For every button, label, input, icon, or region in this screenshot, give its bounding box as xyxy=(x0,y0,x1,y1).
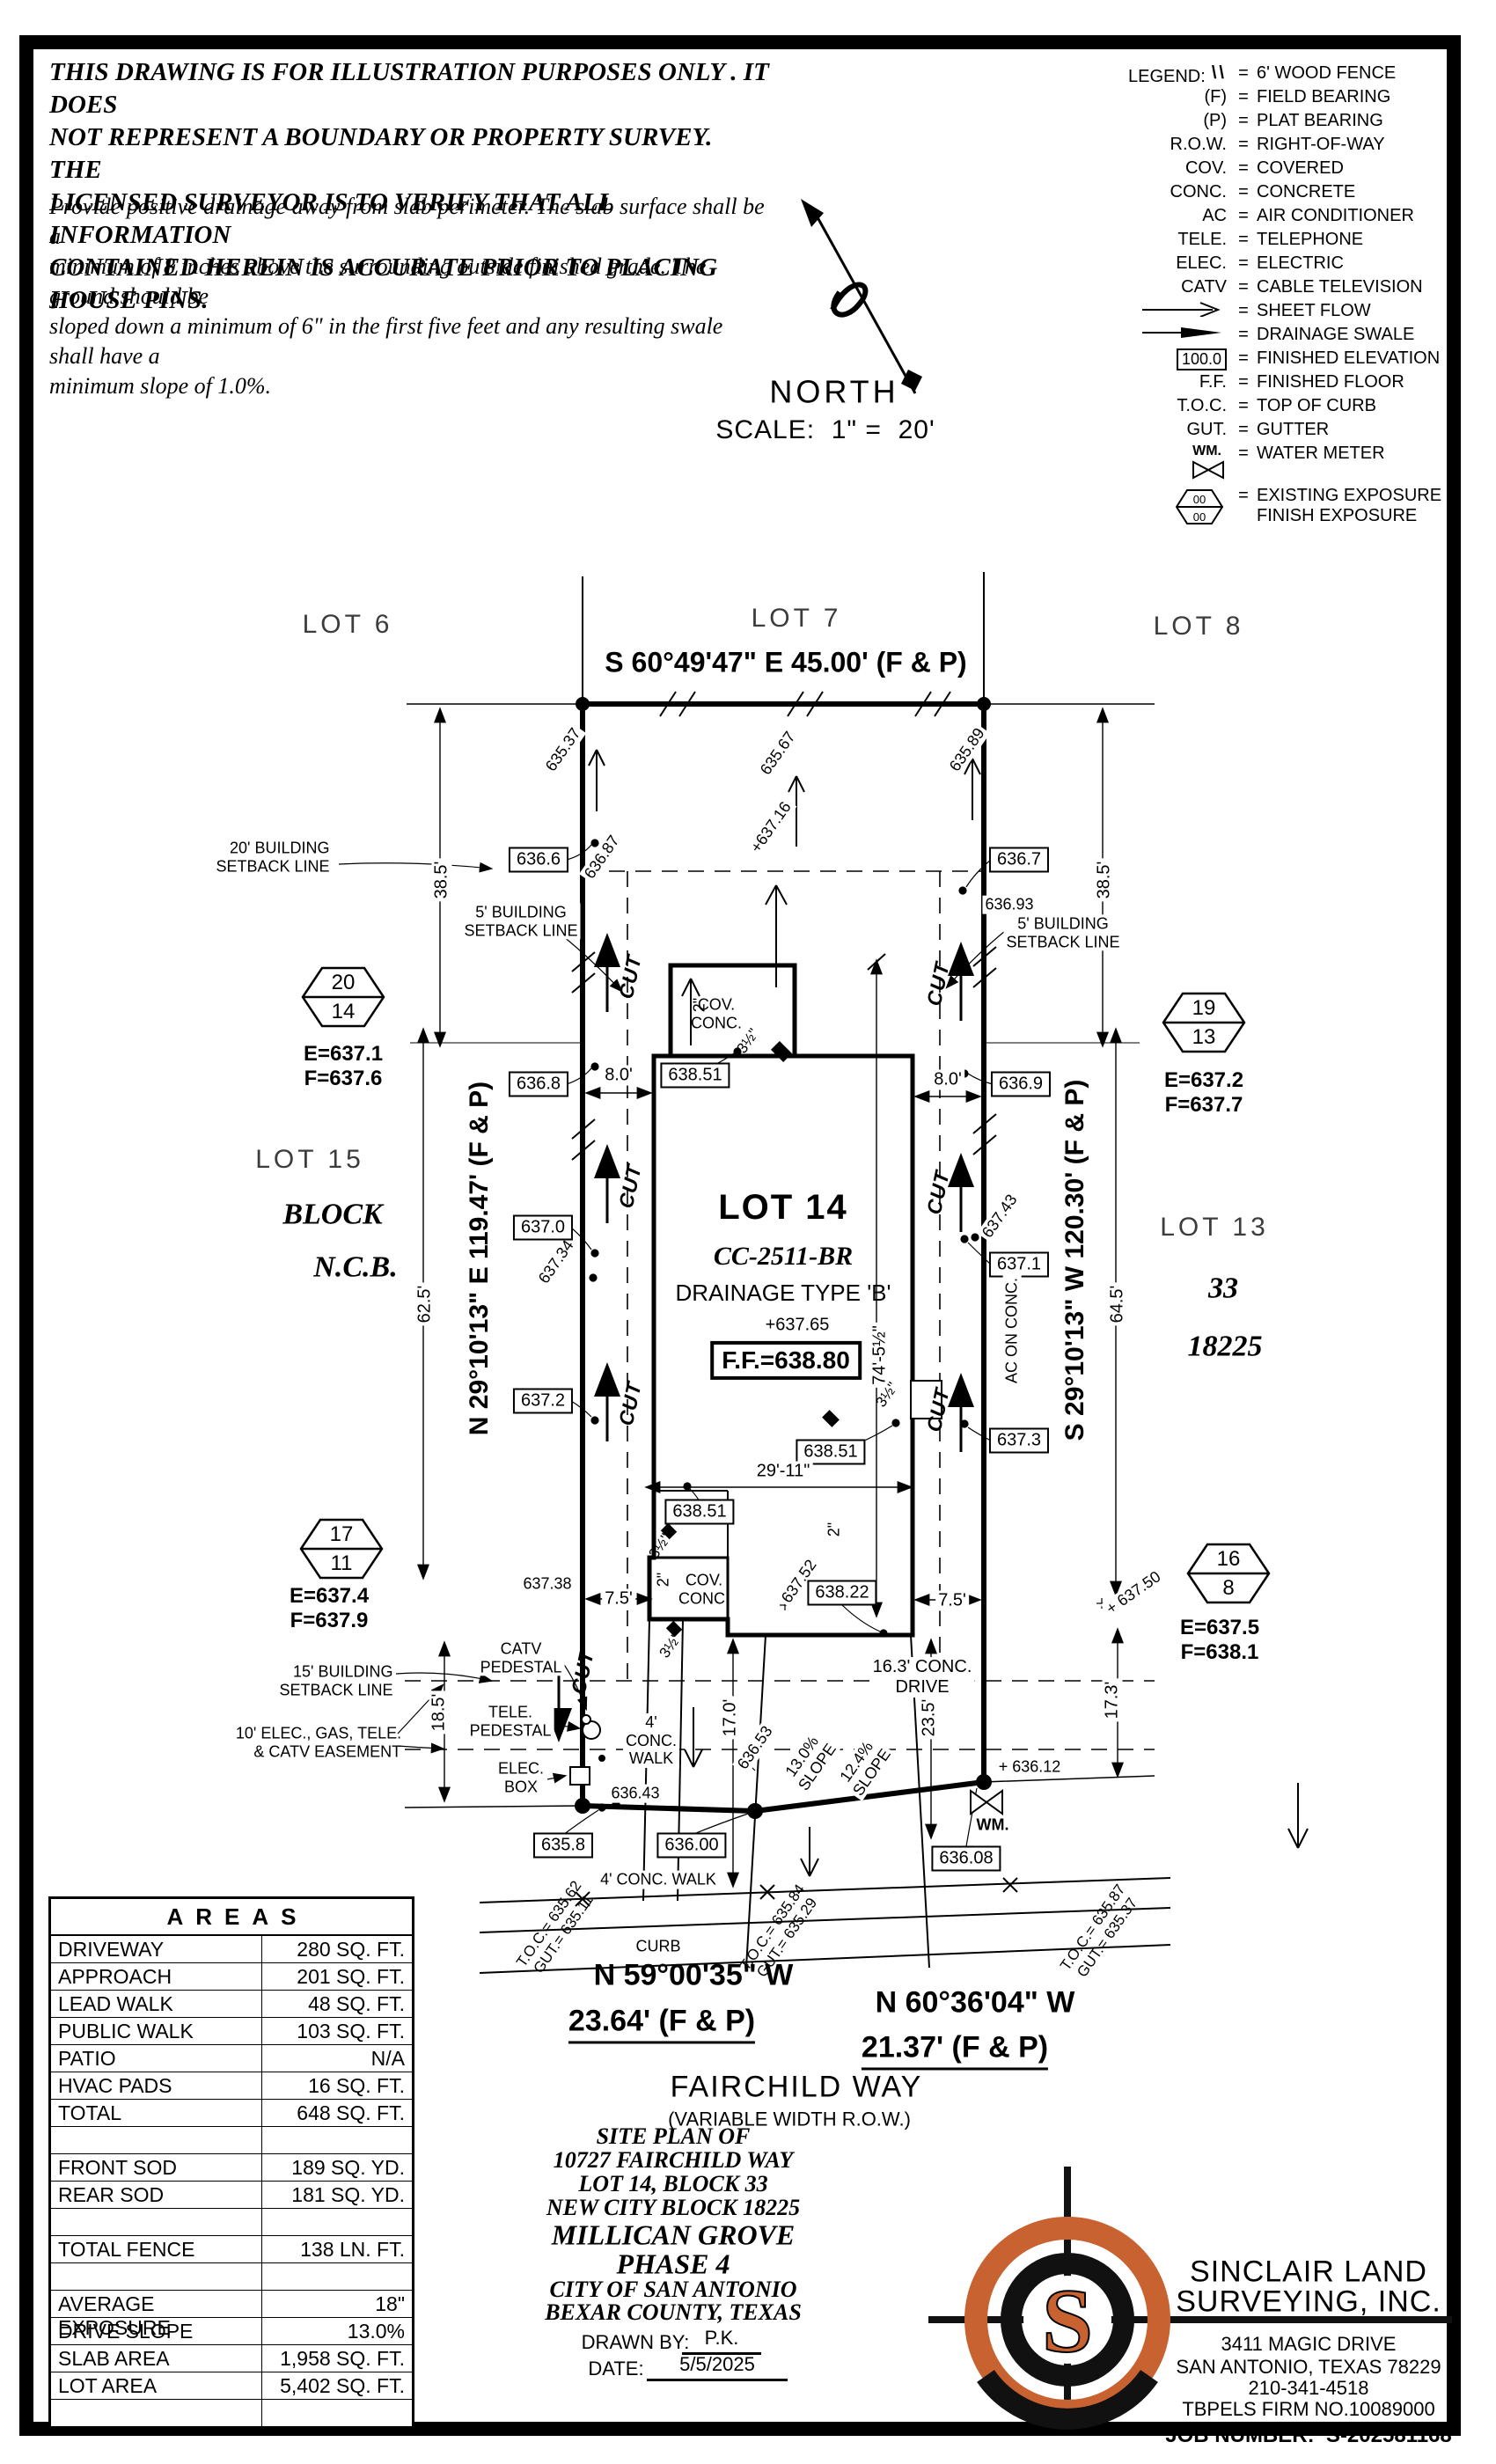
equals-sign: = xyxy=(1230,396,1257,416)
legend-symbol: 0000 xyxy=(1111,486,1230,533)
areas-row-label: AVERAGE EXPOSURE xyxy=(51,2291,262,2317)
finished-elevation: 637.1 xyxy=(989,1252,1049,1278)
drawn-by-value: P.K. xyxy=(682,2327,761,2355)
legend-symbol: F.F. xyxy=(1111,372,1230,392)
lot14-label: LOT 14 xyxy=(718,1187,848,1228)
hex-finish-exposure: 13 xyxy=(1192,1025,1216,1050)
areas-row-label: REAR SOD xyxy=(51,2182,262,2208)
block-label: BLOCK xyxy=(282,1197,382,1231)
lot15-label: LOT 15 xyxy=(255,1145,364,1176)
legend-symbol: \\ xyxy=(1111,63,1230,84)
covered-concrete-label: COV. CONC. xyxy=(678,1571,730,1607)
areas-row-label xyxy=(51,2127,262,2153)
equals-sign: = xyxy=(1230,348,1257,369)
street-name: FAIRCHILD WAY xyxy=(671,2070,923,2104)
legend-symbol: (P) xyxy=(1111,111,1230,131)
legend-item: COV. = COVERED xyxy=(1111,158,1456,182)
finished-floor-elevation: F.F.=638.80 xyxy=(710,1341,862,1380)
dimension: 23.5' xyxy=(920,1697,940,1740)
dimension: 38.5' xyxy=(432,859,452,902)
svg-text:00: 00 xyxy=(1193,493,1206,506)
easement-note: 10' ELEC., GAS, TELE. & CATV EASEMENT xyxy=(236,1724,401,1760)
hex-e-value: E=637.1 xyxy=(304,1042,383,1067)
areas-row-value: 5,402 SQ. FT. xyxy=(262,2372,412,2399)
equals-sign: = xyxy=(1230,444,1257,464)
hex-finish-exposure: 14 xyxy=(332,1000,356,1024)
areas-row-value: 201 SQ. FT. xyxy=(262,1963,412,1990)
equals-sign: = xyxy=(1230,63,1257,84)
areas-row xyxy=(51,2263,412,2291)
equals-sign: = xyxy=(1230,253,1257,274)
areas-row-label: PUBLIC WALK xyxy=(51,2018,262,2044)
lead-walk-label: 4' CONC. WALK xyxy=(623,1713,679,1768)
areas-row xyxy=(51,2209,412,2236)
areas-row: TOTAL FENCE 138 LN. FT. xyxy=(51,2236,412,2263)
areas-row-label: FRONT SOD xyxy=(51,2154,262,2181)
hex-e-value: E=637.2 xyxy=(1164,1068,1243,1093)
legend-text: FINISHED ELEVATION xyxy=(1257,348,1456,369)
lot7-label: LOT 7 xyxy=(752,604,842,634)
finished-elevation: 638.22 xyxy=(807,1580,876,1606)
legend-text: 6' WOOD FENCE xyxy=(1257,63,1456,84)
areas-row-label: HVAC PADS xyxy=(51,2072,262,2099)
areas-row-value: 280 SQ. FT. xyxy=(262,1936,412,1962)
dimension: 29'-11" xyxy=(754,1462,813,1482)
spot-elevation: + 636.12 xyxy=(996,1758,1064,1777)
drainage-note: Provide positive drainage away from slab… xyxy=(49,192,771,401)
legend-item: 0000 = EXISTING EXPOSURE FINISH EXPOSURE xyxy=(1111,486,1456,533)
areas-row-value: 648 SQ. FT. xyxy=(262,2100,412,2126)
areas-row: HVAC PADS 16 SQ. FT. xyxy=(51,2072,412,2100)
dimension: 17.3' xyxy=(1103,1679,1123,1722)
areas-rows: DRIVEWAY 280 SQ. FT. APPROACH 201 SQ. FT… xyxy=(51,1936,412,2426)
hex-f-value: F=637.7 xyxy=(1165,1093,1243,1118)
equals-sign: = xyxy=(1230,230,1257,250)
equals-sign: = xyxy=(1230,111,1257,131)
legend-text: EXISTING EXPOSURE FINISH EXPOSURE xyxy=(1257,486,1456,526)
areas-row-label xyxy=(51,2400,262,2426)
legend-symbol: (F) xyxy=(1111,87,1230,107)
areas-row-label: DRIVE SLOPE xyxy=(51,2318,262,2344)
spot-elevation: 636.43 xyxy=(608,1785,662,1803)
legend-symbol: COV. xyxy=(1111,158,1230,179)
setback-note-20: 20' BUILDING SETBACK LINE xyxy=(216,839,329,875)
bearing-west-line: N 29°10'13" E 119.47' (F & P) xyxy=(465,1082,495,1435)
areas-table: AREAS DRIVEWAY 280 SQ. FT. APPROACH 201 … xyxy=(48,1896,414,2429)
date-label: DATE: xyxy=(588,2358,643,2380)
drawn-by-label: DRAWN BY: xyxy=(582,2331,690,2354)
legend-text: AIR CONDITIONER xyxy=(1257,206,1456,226)
legend-item: CATV = CABLE TELEVISION xyxy=(1111,277,1456,301)
legend-symbol: WM. xyxy=(1111,444,1230,486)
legend-item: GUT. = GUTTER xyxy=(1111,420,1456,444)
surveyor-address-1: 3411 MAGIC DRIVE xyxy=(1221,2333,1397,2356)
block33-label: 33 xyxy=(1208,1271,1238,1305)
site-plan-sheet: S THIS DRAWING IS FOR ILLUSTRATION PURPO… xyxy=(0,0,1496,2464)
legend-symbol: CATV xyxy=(1111,277,1230,297)
dimension: 38.5' xyxy=(1095,859,1115,902)
legend-symbol xyxy=(1111,325,1230,345)
finished-elevation: 636.00 xyxy=(656,1833,726,1859)
areas-row: PATIO N/A xyxy=(51,2045,412,2072)
dimension: 7.5' xyxy=(602,1589,635,1610)
hex-existing-exposure: 17 xyxy=(330,1522,354,1547)
areas-row-value xyxy=(262,2209,412,2235)
areas-row-value: 189 SQ. YD. xyxy=(262,2154,412,2181)
areas-row-value: 181 SQ. YD. xyxy=(262,2182,412,2208)
legend-item: TELE. = TELEPHONE xyxy=(1111,230,1456,253)
legend-item: CONC. = CONCRETE xyxy=(1111,182,1456,206)
areas-row-label: LOT AREA xyxy=(51,2372,262,2399)
legend-symbol xyxy=(1111,301,1230,322)
legend-text: CABLE TELEVISION xyxy=(1257,277,1456,297)
ncb-label: N.C.B. xyxy=(313,1250,397,1284)
areas-row: FRONT SOD 189 SQ. YD. xyxy=(51,2154,412,2182)
legend-item: WM. = WATER METER xyxy=(1111,444,1456,486)
areas-row-value: 103 SQ. FT. xyxy=(262,2018,412,2044)
finished-elevation: 636.08 xyxy=(931,1846,1001,1872)
finished-elevation: 637.0 xyxy=(513,1215,573,1241)
areas-row-label: LEAD WALK xyxy=(51,1991,262,2017)
legend-text: CONCRETE xyxy=(1257,182,1456,202)
bearing-street-1-dist: 23.64' (F & P) xyxy=(568,2004,755,2043)
size-label: 2" xyxy=(691,998,709,1012)
areas-row-value: 138 LN. FT. xyxy=(262,2236,412,2262)
equals-sign: = xyxy=(1230,486,1257,506)
legend-text: FINISHED FLOOR xyxy=(1257,372,1456,392)
areas-row: LEAD WALK 48 SQ. FT. xyxy=(51,1991,412,2018)
surveyor-phone: 210-341-4518 xyxy=(1248,2377,1368,2400)
spot-elevation: 636.93 xyxy=(982,896,1036,914)
legend-item: F.F. = FINISHED FLOOR xyxy=(1111,372,1456,396)
size-label: 2" xyxy=(825,1522,844,1536)
areas-row: DRIVEWAY 280 SQ. FT. xyxy=(51,1936,412,1963)
exposure-hex-icon: 0000 xyxy=(1172,486,1227,528)
surveyor-address-2: SAN ANTONIO, TEXAS 78229 xyxy=(1176,2356,1441,2379)
equals-sign: = xyxy=(1230,277,1257,297)
equals-sign: = xyxy=(1230,206,1257,226)
hex-finish-exposure: 11 xyxy=(331,1551,353,1576)
hex-finish-exposure: 8 xyxy=(1222,1576,1234,1601)
areas-row: AVERAGE EXPOSURE 18" xyxy=(51,2291,412,2318)
areas-row: DRIVE SLOPE 13.0% xyxy=(51,2318,412,2345)
areas-row: TOTAL 648 SQ. FT. xyxy=(51,2100,412,2127)
dimension: 74'-5½" xyxy=(870,1323,891,1388)
drive-label: 16.3' CONC. DRIVE xyxy=(870,1657,975,1698)
legend-item: (F) = FIELD BEARING xyxy=(1111,87,1456,111)
legend-item: T.O.C. = TOP OF CURB xyxy=(1111,396,1456,420)
title-county: BEXAR COUNTY, TEXAS xyxy=(545,2299,802,2326)
areas-row-value: N/A xyxy=(262,2045,412,2072)
equals-sign: = xyxy=(1230,182,1257,202)
finished-elevation-icon: 100.0 xyxy=(1177,348,1227,370)
dimension: 17.0' xyxy=(721,1697,741,1740)
drainage-type-label: DRAINAGE TYPE 'B' xyxy=(676,1280,891,1307)
legend-symbol: AC xyxy=(1111,206,1230,226)
spot-elevation: +637.65 xyxy=(763,1316,832,1336)
legend-item: AC = AIR CONDITIONER xyxy=(1111,206,1456,230)
areas-row-label: TOTAL xyxy=(51,2100,262,2126)
ncb18225-label: 18225 xyxy=(1188,1329,1263,1363)
setback-note-5-left: 5' BUILDING SETBACK LINE xyxy=(461,903,580,939)
hex-f-value: F=637.6 xyxy=(304,1067,383,1091)
areas-row: REAR SOD 181 SQ. YD. xyxy=(51,2182,412,2209)
legend-symbol: 100.0 xyxy=(1111,348,1230,370)
legend-item: (P) = PLAT BEARING xyxy=(1111,111,1456,135)
legend-item: R.O.W. = RIGHT-OF-WAY xyxy=(1111,135,1456,158)
equals-sign: = xyxy=(1230,301,1257,321)
areas-row-value: 18" xyxy=(262,2291,412,2317)
equals-sign: = xyxy=(1230,87,1257,107)
areas-row: SLAB AREA 1,958 SQ. FT. xyxy=(51,2345,412,2372)
areas-row-value xyxy=(262,2263,412,2290)
surveyor-firm: TBPELS FIRM NO.10089000 xyxy=(1182,2398,1434,2421)
north-label: NORTH xyxy=(769,373,898,409)
finished-elevation: 635.8 xyxy=(533,1833,593,1859)
lot8-label: LOT 8 xyxy=(1154,612,1244,642)
areas-row-label: PATIO xyxy=(51,2045,262,2072)
plan-code-label: CC-2511-BR xyxy=(714,1242,853,1272)
areas-row-label: DRIVEWAY xyxy=(51,1936,262,1962)
legend-symbol: GUT. xyxy=(1111,420,1230,440)
areas-row-value xyxy=(262,2400,412,2426)
areas-row-value xyxy=(262,2127,412,2153)
hex-e-value: E=637.5 xyxy=(1180,1616,1259,1640)
finished-elevation: 636.8 xyxy=(509,1072,568,1097)
legend-text: PLAT BEARING xyxy=(1257,111,1456,131)
legend-text: DRAINAGE SWALE xyxy=(1257,325,1456,345)
legend-text: RIGHT-OF-WAY xyxy=(1257,135,1456,155)
equals-sign: = xyxy=(1230,372,1257,392)
legend-text: ELECTRIC xyxy=(1257,253,1456,274)
dimension: 8.0' xyxy=(931,1070,964,1090)
areas-row: APPROACH 201 SQ. FT. xyxy=(51,1963,412,1991)
equals-sign: = xyxy=(1230,158,1257,179)
scale-label: SCALE: 1" = 20' xyxy=(715,415,935,446)
dimension: 7.5' xyxy=(935,1591,969,1611)
dimension: 64.5' xyxy=(1108,1283,1128,1326)
title-lot-block: LOT 14, BLOCK 33 xyxy=(578,2171,767,2197)
equals-sign: = xyxy=(1230,420,1257,440)
size-label: 2" xyxy=(655,1573,673,1587)
equals-sign: = xyxy=(1230,325,1257,345)
finished-elevation: 637.3 xyxy=(989,1428,1049,1454)
date-value: 5/5/2025 xyxy=(647,2353,788,2381)
bearing-street-2: N 60°36'04" W xyxy=(876,1985,1075,2020)
legend-item: \\ = 6' WOOD FENCE xyxy=(1111,63,1456,87)
areas-row xyxy=(51,2400,412,2426)
water-meter-symbol xyxy=(971,1791,1002,1814)
lot-division-lines xyxy=(583,572,984,704)
legend-text: TELEPHONE xyxy=(1257,230,1456,250)
areas-row-label: TOTAL FENCE xyxy=(51,2236,262,2262)
legend-text: FIELD BEARING xyxy=(1257,87,1456,107)
svg-text:00: 00 xyxy=(1193,510,1206,524)
ac-on-conc-label: AC ON CONC. xyxy=(1003,1275,1022,1386)
legend-item: = DRAINAGE SWALE xyxy=(1111,325,1456,348)
legend-symbol: ELEC. xyxy=(1111,253,1230,274)
drainage-swale-icon xyxy=(1139,326,1227,340)
legend: \\ = 6' WOOD FENCE (F) = FIELD BEAR xyxy=(1111,63,1456,533)
legend-symbol: T.O.C. xyxy=(1111,396,1230,416)
areas-row-value: 16 SQ. FT. xyxy=(262,2072,412,2099)
areas-title: AREAS xyxy=(51,1899,412,1936)
hex-f-value: F=638.1 xyxy=(1181,1640,1259,1665)
setback-note-5-right: 5' BUILDING SETBACK LINE xyxy=(1003,914,1122,950)
legend-symbol: R.O.W. xyxy=(1111,135,1230,155)
areas-row-value: 1,958 SQ. FT. xyxy=(262,2345,412,2372)
finished-elevation: 636.7 xyxy=(989,847,1049,873)
curb-label: CURB xyxy=(633,1938,683,1956)
hex-f-value: F=637.9 xyxy=(290,1609,369,1633)
legend-item: ELEC. = ELECTRIC xyxy=(1111,253,1456,277)
surveyor-name-2: SURVEYING, INC. xyxy=(1176,2285,1441,2320)
areas-row-value: 48 SQ. FT. xyxy=(262,1991,412,2017)
dimension: 62.5' xyxy=(415,1283,436,1326)
hex-existing-exposure: 19 xyxy=(1192,996,1216,1021)
wood-fence-icon: \\ xyxy=(1212,63,1227,83)
hex-existing-exposure: 20 xyxy=(332,971,356,995)
areas-row: PUBLIC WALK 103 SQ. FT. xyxy=(51,2018,412,2045)
finished-elevation: 636.6 xyxy=(509,847,568,873)
finished-elevation: 638.51 xyxy=(660,1063,730,1089)
water-meter-icon: WM. xyxy=(1111,444,1227,485)
legend-item: = SHEET FLOW xyxy=(1111,301,1456,325)
lot6-label: LOT 6 xyxy=(303,610,393,641)
spot-elevation: 637.38 xyxy=(520,1575,574,1594)
legend-text: GUTTER xyxy=(1257,420,1456,440)
legend-text: COVERED xyxy=(1257,158,1456,179)
legend-text: SHEET FLOW xyxy=(1257,301,1456,321)
elec-box-label: ELEC. BOX xyxy=(495,1759,546,1795)
areas-row-label xyxy=(51,2209,262,2235)
bearing-street-2-dist: 21.37' (F & P) xyxy=(862,2030,1048,2070)
catv-pedestal-label: CATV PEDESTAL xyxy=(478,1639,565,1676)
sheet-flow-icon xyxy=(1139,301,1227,317)
title-phase: PHASE 4 xyxy=(617,2248,730,2281)
bearing-north-line: S 60°49'47" E 45.00' (F & P) xyxy=(605,647,966,679)
hex-e-value: E=637.4 xyxy=(290,1584,369,1609)
north-arrow xyxy=(801,199,922,393)
tele-pedestal-label: TELE. PEDESTAL xyxy=(467,1703,554,1739)
job-number: JOB NUMBER: S-202581168 xyxy=(1165,2424,1451,2448)
legend-item: 100.0 = FINISHED ELEVATION xyxy=(1111,348,1456,372)
legend-symbol: CONC. xyxy=(1111,182,1230,202)
areas-row xyxy=(51,2127,412,2154)
legend-symbol: TELE. xyxy=(1111,230,1230,250)
title-line: SITE PLAN OF xyxy=(597,2123,751,2150)
setback-note-15: 15' BUILDING SETBACK LINE xyxy=(279,1662,392,1698)
lot13-label: LOT 13 xyxy=(1160,1213,1269,1243)
areas-row: LOT AREA 5,402 SQ. FT. xyxy=(51,2372,412,2400)
areas-row-label: SLAB AREA xyxy=(51,2345,262,2372)
areas-row-label xyxy=(51,2263,262,2290)
finished-elevation: 637.2 xyxy=(513,1389,573,1414)
legend-text: WATER METER xyxy=(1257,444,1456,464)
legend-text: TOP OF CURB xyxy=(1257,396,1456,416)
equals-sign: = xyxy=(1230,135,1257,155)
public-walk-label: 4' CONC. WALK xyxy=(598,1871,719,1889)
title-subdivision: MILLICAN GROVE xyxy=(552,2219,796,2252)
finished-elevation: 638.51 xyxy=(664,1500,734,1525)
finished-elevation: 636.9 xyxy=(991,1072,1051,1097)
dimension: 8.0' xyxy=(602,1066,635,1086)
dimension: 18.5' xyxy=(429,1691,450,1734)
hex-existing-exposure: 16 xyxy=(1217,1547,1241,1572)
svg-text:S: S xyxy=(1042,2270,1093,2372)
areas-row-label: APPROACH xyxy=(51,1963,262,1990)
title-ncb: NEW CITY BLOCK 18225 xyxy=(546,2195,800,2221)
bearing-east-line: S 29°10'13" W 120.30' (F & P) xyxy=(1060,1080,1091,1441)
title-address: 10727 FAIRCHILD WAY xyxy=(554,2147,794,2174)
water-meter-label: WM. xyxy=(974,1816,1012,1835)
areas-row-value: 13.0% xyxy=(262,2318,412,2344)
